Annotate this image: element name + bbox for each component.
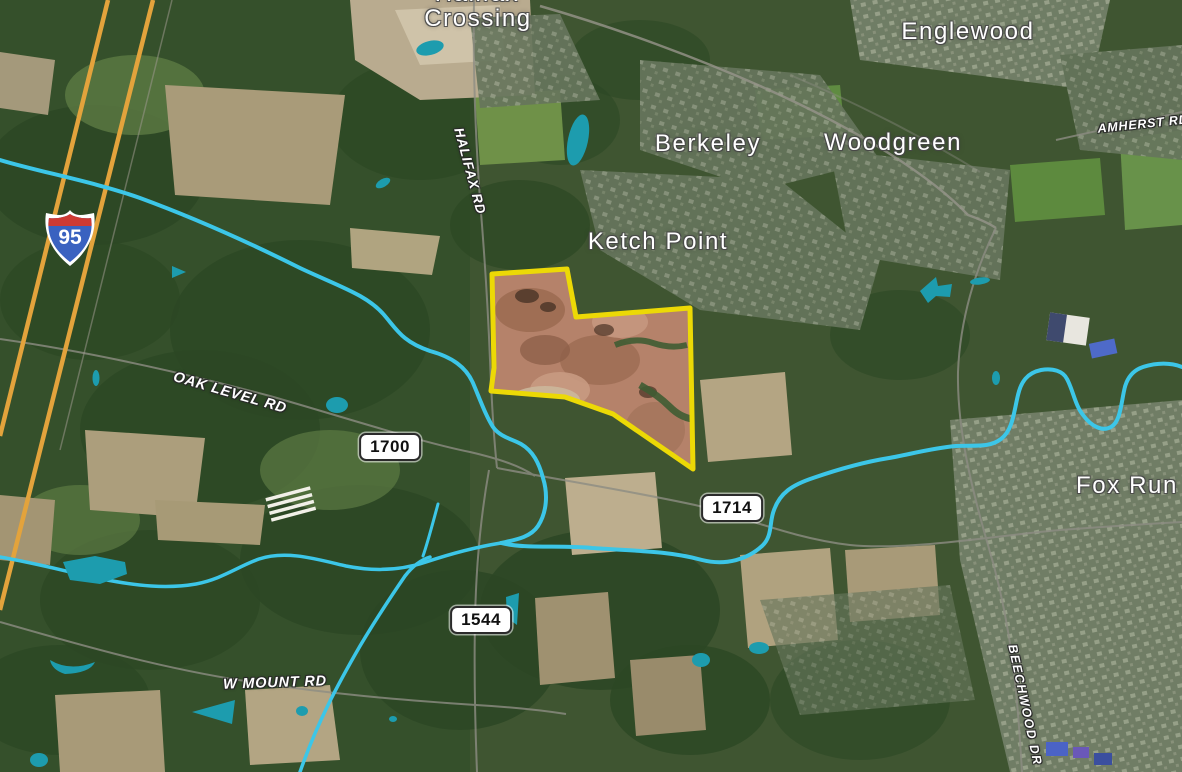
road-label-w-mount-rd: W MOUNT RD: [223, 673, 327, 693]
route-badge-1714: 1714: [701, 494, 763, 522]
interstate-number: 95: [43, 226, 97, 250]
interstate-95-shield: 95: [43, 210, 97, 266]
place-label-crossing: Crossing: [424, 5, 532, 33]
place-label-ketch-point: Ketch Point: [588, 228, 728, 256]
road-label-beechwood-dr: BEECHWOOD DR: [1005, 643, 1044, 767]
place-label-fox-run: Fox Run: [1076, 472, 1178, 500]
satellite-map[interactable]: Halifax Crossing Englewood Berkeley Wood…: [0, 0, 1182, 772]
place-label-halifax-partial: Halifax: [435, 0, 520, 8]
route-badge-1700: 1700: [359, 433, 421, 461]
road-label-amherst-rd: AMHERST RD: [1097, 112, 1182, 135]
map-annotations: Halifax Crossing Englewood Berkeley Wood…: [0, 0, 1182, 772]
place-label-berkeley: Berkeley: [655, 130, 761, 158]
road-label-halifax-rd: HALIFAX RD: [451, 126, 489, 216]
place-label-englewood: Englewood: [901, 18, 1034, 46]
route-badge-1544: 1544: [450, 606, 512, 634]
place-label-woodgreen: Woodgreen: [824, 129, 962, 157]
road-label-oak-level-rd: OAK LEVEL RD: [171, 369, 288, 417]
